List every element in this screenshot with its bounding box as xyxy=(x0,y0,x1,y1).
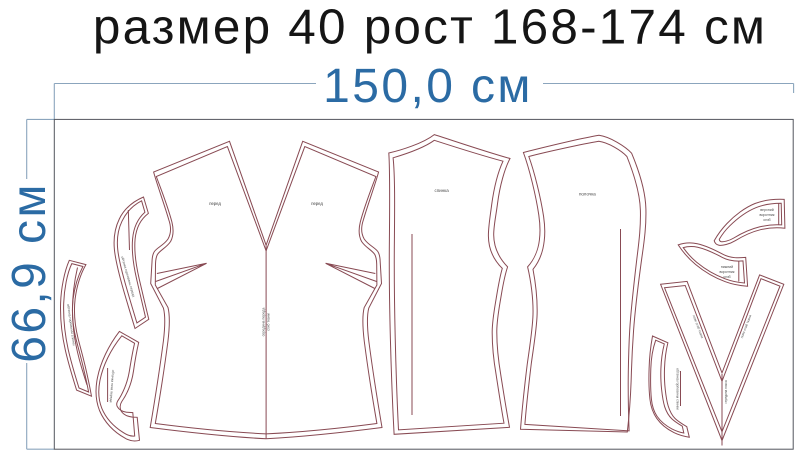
svg-text:перед: перед xyxy=(311,201,323,206)
svg-text:воротник: воротник xyxy=(720,270,735,274)
svg-text:обтачка горловины спинки: обтачка горловины спинки xyxy=(676,368,680,410)
svg-text:66,9 см: 66,9 см xyxy=(3,182,56,363)
svg-text:размер 40 рост 168-174 см: размер 40 рост 168-174 см xyxy=(93,0,767,55)
svg-text:сгиб: сгиб xyxy=(723,275,730,279)
svg-text:перед: перед xyxy=(209,201,221,206)
svg-text:сгиб: сгиб xyxy=(763,218,770,222)
svg-text:нижний: нижний xyxy=(721,265,733,269)
svg-text:спинка: спинка xyxy=(434,188,449,193)
svg-text:верхний: верхний xyxy=(760,208,774,212)
svg-text:150,0 см: 150,0 см xyxy=(323,60,533,113)
svg-text:середина переда: середина переда xyxy=(261,308,265,337)
svg-text:воротник: воротник xyxy=(760,213,775,217)
svg-text:полочка: полочка xyxy=(579,192,596,197)
svg-text:середина пояса: середина пояса xyxy=(724,380,728,404)
svg-text:сгиб ткани: сгиб ткани xyxy=(266,313,270,330)
